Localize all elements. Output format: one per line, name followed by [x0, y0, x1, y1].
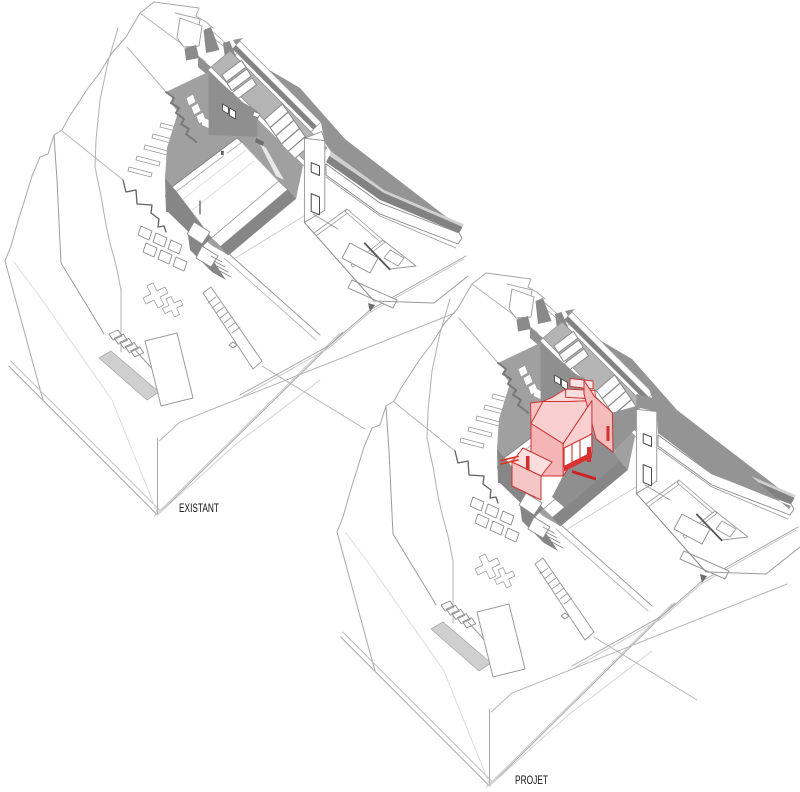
svg-text:EXISTANT: EXISTANT — [179, 501, 219, 515]
svg-text:PROJET: PROJET — [515, 773, 548, 787]
